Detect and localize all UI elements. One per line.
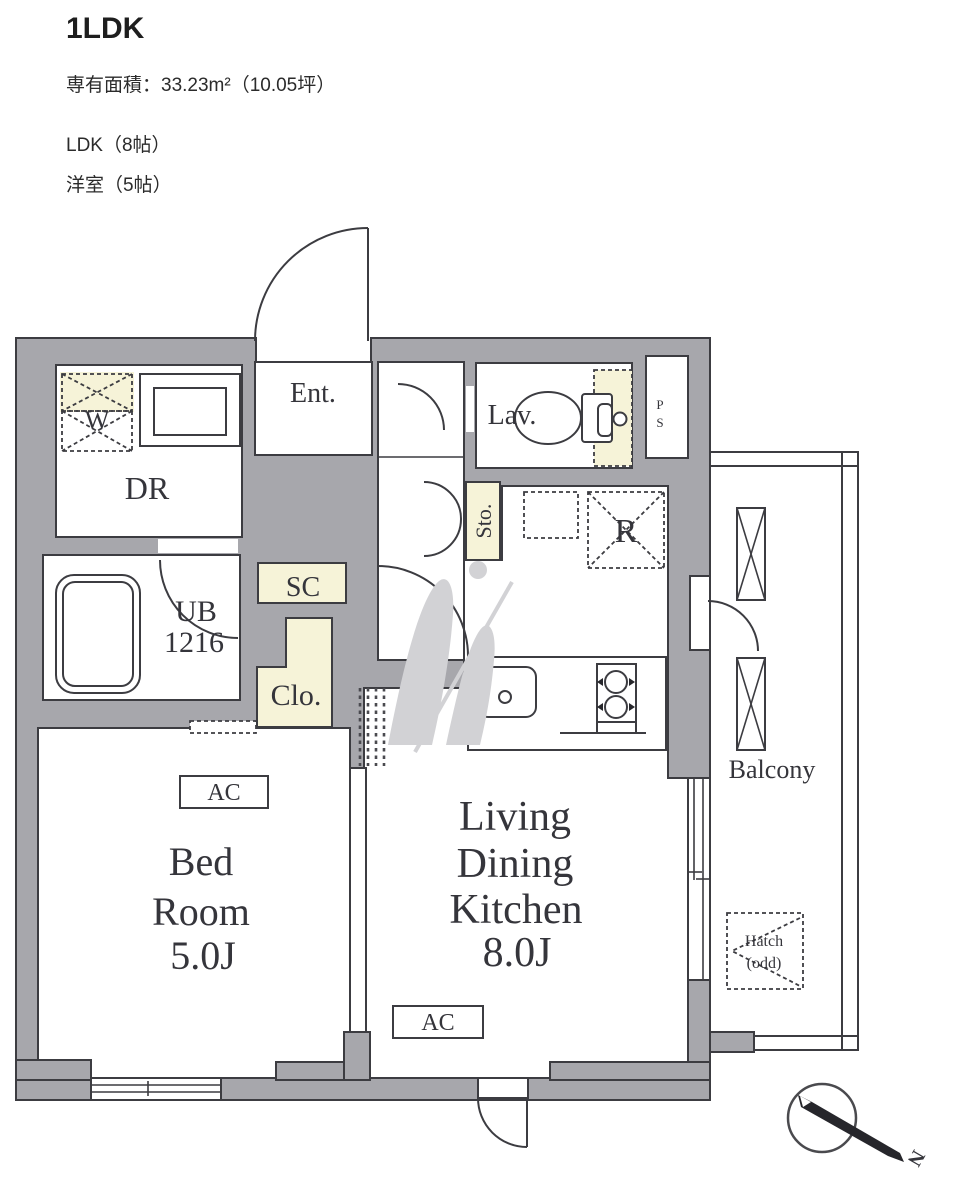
label-hatch-1: Hatch (745, 933, 783, 950)
balcony-sliding-window (688, 778, 710, 980)
ldk-bottom-door (478, 1078, 528, 1147)
svg-text:AC: AC (207, 780, 240, 806)
label-unit-bath-size: 1216 (164, 626, 224, 659)
label-dressing-room: DR (125, 470, 170, 506)
floorplan-page: 1LDK 専有面積：33.23m²（10.05坪） LDK（8帖） 洋室（5帖） (0, 0, 957, 1178)
wall-chunk (276, 1062, 344, 1080)
lavatory-doorway (466, 386, 474, 432)
label-ldk-4: 8.0J (483, 930, 552, 976)
label-closet: Clo. (271, 679, 322, 712)
entrance-door (255, 228, 368, 341)
label-washer: W (85, 406, 110, 435)
ac-box-ldk: AC (393, 1006, 483, 1038)
unit-bath-doorway (158, 539, 238, 553)
label-bedroom-1: Bed (169, 839, 233, 884)
label-bedroom-2: Room (152, 889, 250, 934)
partition-stub (344, 1032, 370, 1080)
wall-chunk (550, 1062, 710, 1080)
label-entrance: Ent. (290, 378, 336, 409)
svg-text:AC: AC (421, 1010, 454, 1036)
label-refrigerator: R (615, 513, 638, 550)
label-ldk-3: Kitchen (450, 887, 583, 933)
pipe-shaft-box (646, 356, 688, 458)
label-bedroom-3: 5.0J (170, 933, 236, 978)
label-ldk-2: Dining (457, 841, 574, 887)
label-storage: Sto. (471, 504, 496, 539)
bedroom-top-vent (190, 721, 256, 733)
label-shoe-closet: SC (286, 572, 320, 603)
label-unit-bath: UB (175, 595, 217, 628)
floorplan-drawing: W DR Ent. Lav. P S UB 1216 SC Sto. Clo. … (0, 0, 957, 1178)
bedroom-window (91, 1078, 221, 1100)
balcony (710, 452, 858, 1050)
lav-sink (614, 413, 627, 426)
label-hatch-2: (odd) (747, 955, 782, 972)
wall-chunk (710, 1032, 754, 1052)
label-compass-north: N (903, 1146, 930, 1170)
balcony-doorway (690, 576, 710, 650)
label-balcony: Balcony (729, 755, 816, 784)
label-lavatory: Lav. (488, 400, 537, 431)
kitchen-counter (468, 657, 666, 750)
wall-chunk (16, 1060, 91, 1080)
label-ldk-1: Living (459, 794, 571, 840)
entrance-doorway (256, 337, 371, 363)
label-ps-s: S (656, 415, 663, 430)
label-ps-p: P (656, 397, 663, 412)
compass: N (788, 1084, 929, 1170)
ac-box-bedroom: AC (180, 776, 268, 808)
